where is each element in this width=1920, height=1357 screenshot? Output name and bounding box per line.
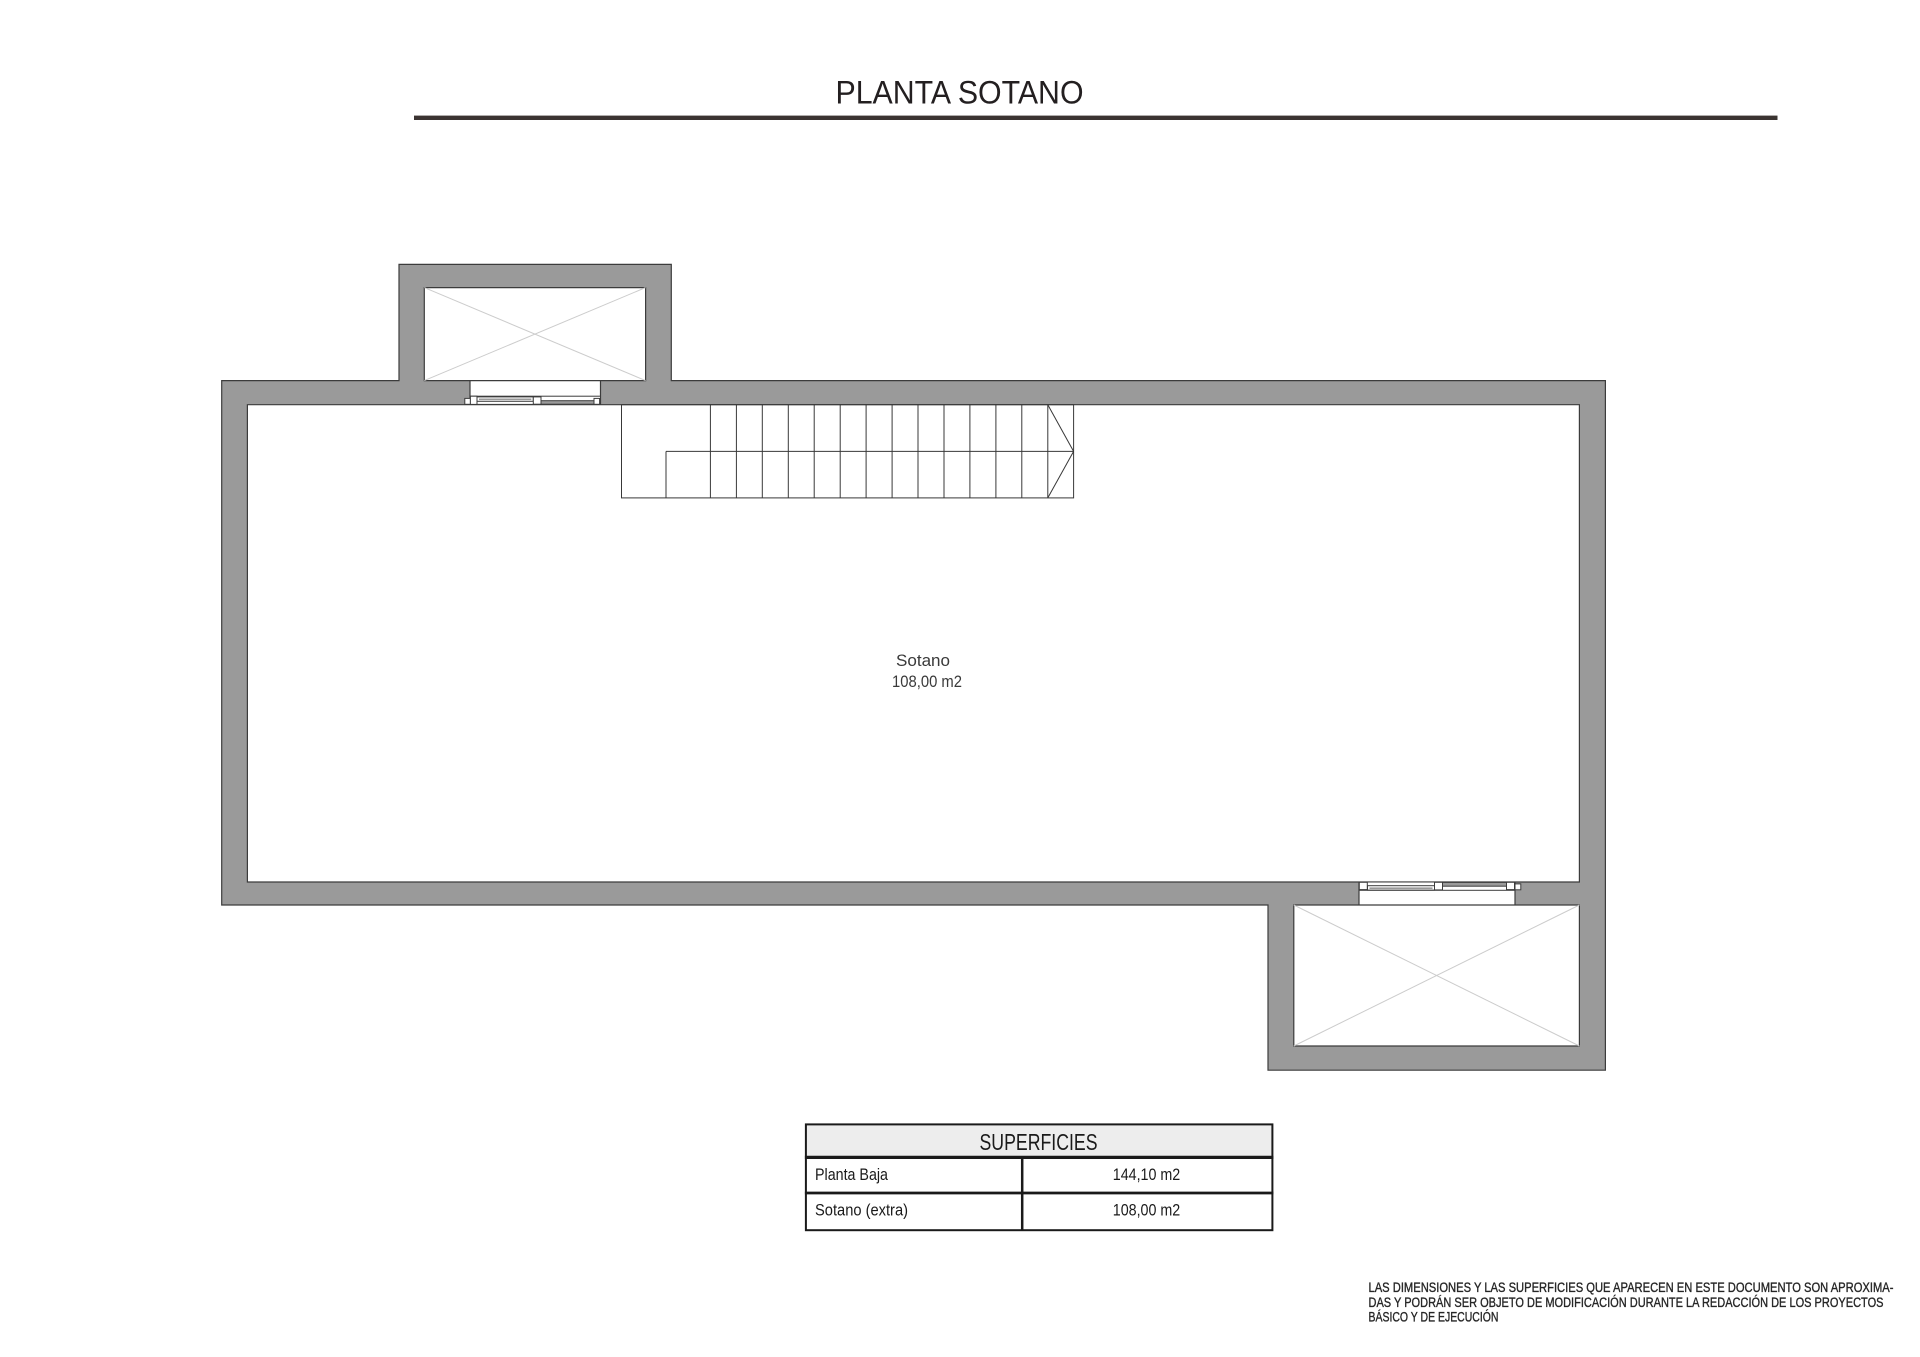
svg-text:BÁSICO Y DE EJECUCIÓN: BÁSICO Y DE EJECUCIÓN	[1369, 1310, 1499, 1325]
svg-text:144,10 m2: 144,10 m2	[1113, 1165, 1181, 1184]
svg-text:Sotano: Sotano	[896, 652, 950, 670]
svg-text:SUPERFICIES: SUPERFICIES	[980, 1129, 1098, 1155]
svg-text:108,00 m2: 108,00 m2	[1113, 1201, 1181, 1220]
svg-text:Sotano (extra): Sotano (extra)	[815, 1201, 908, 1220]
svg-text:DAS Y PODRÁN SER OBJETO DE MOD: DAS Y PODRÁN SER OBJETO DE MODIFICACIÓN …	[1369, 1295, 1884, 1310]
svg-text:LAS DIMENSIONES Y LAS SUPERFIC: LAS DIMENSIONES Y LAS SUPERFICIES QUE AP…	[1369, 1280, 1894, 1295]
svg-text:108,00 m2: 108,00 m2	[892, 673, 962, 691]
svg-text:Planta Baja: Planta Baja	[815, 1165, 888, 1184]
svg-text:PLANTA SOTANO: PLANTA SOTANO	[836, 74, 1084, 110]
